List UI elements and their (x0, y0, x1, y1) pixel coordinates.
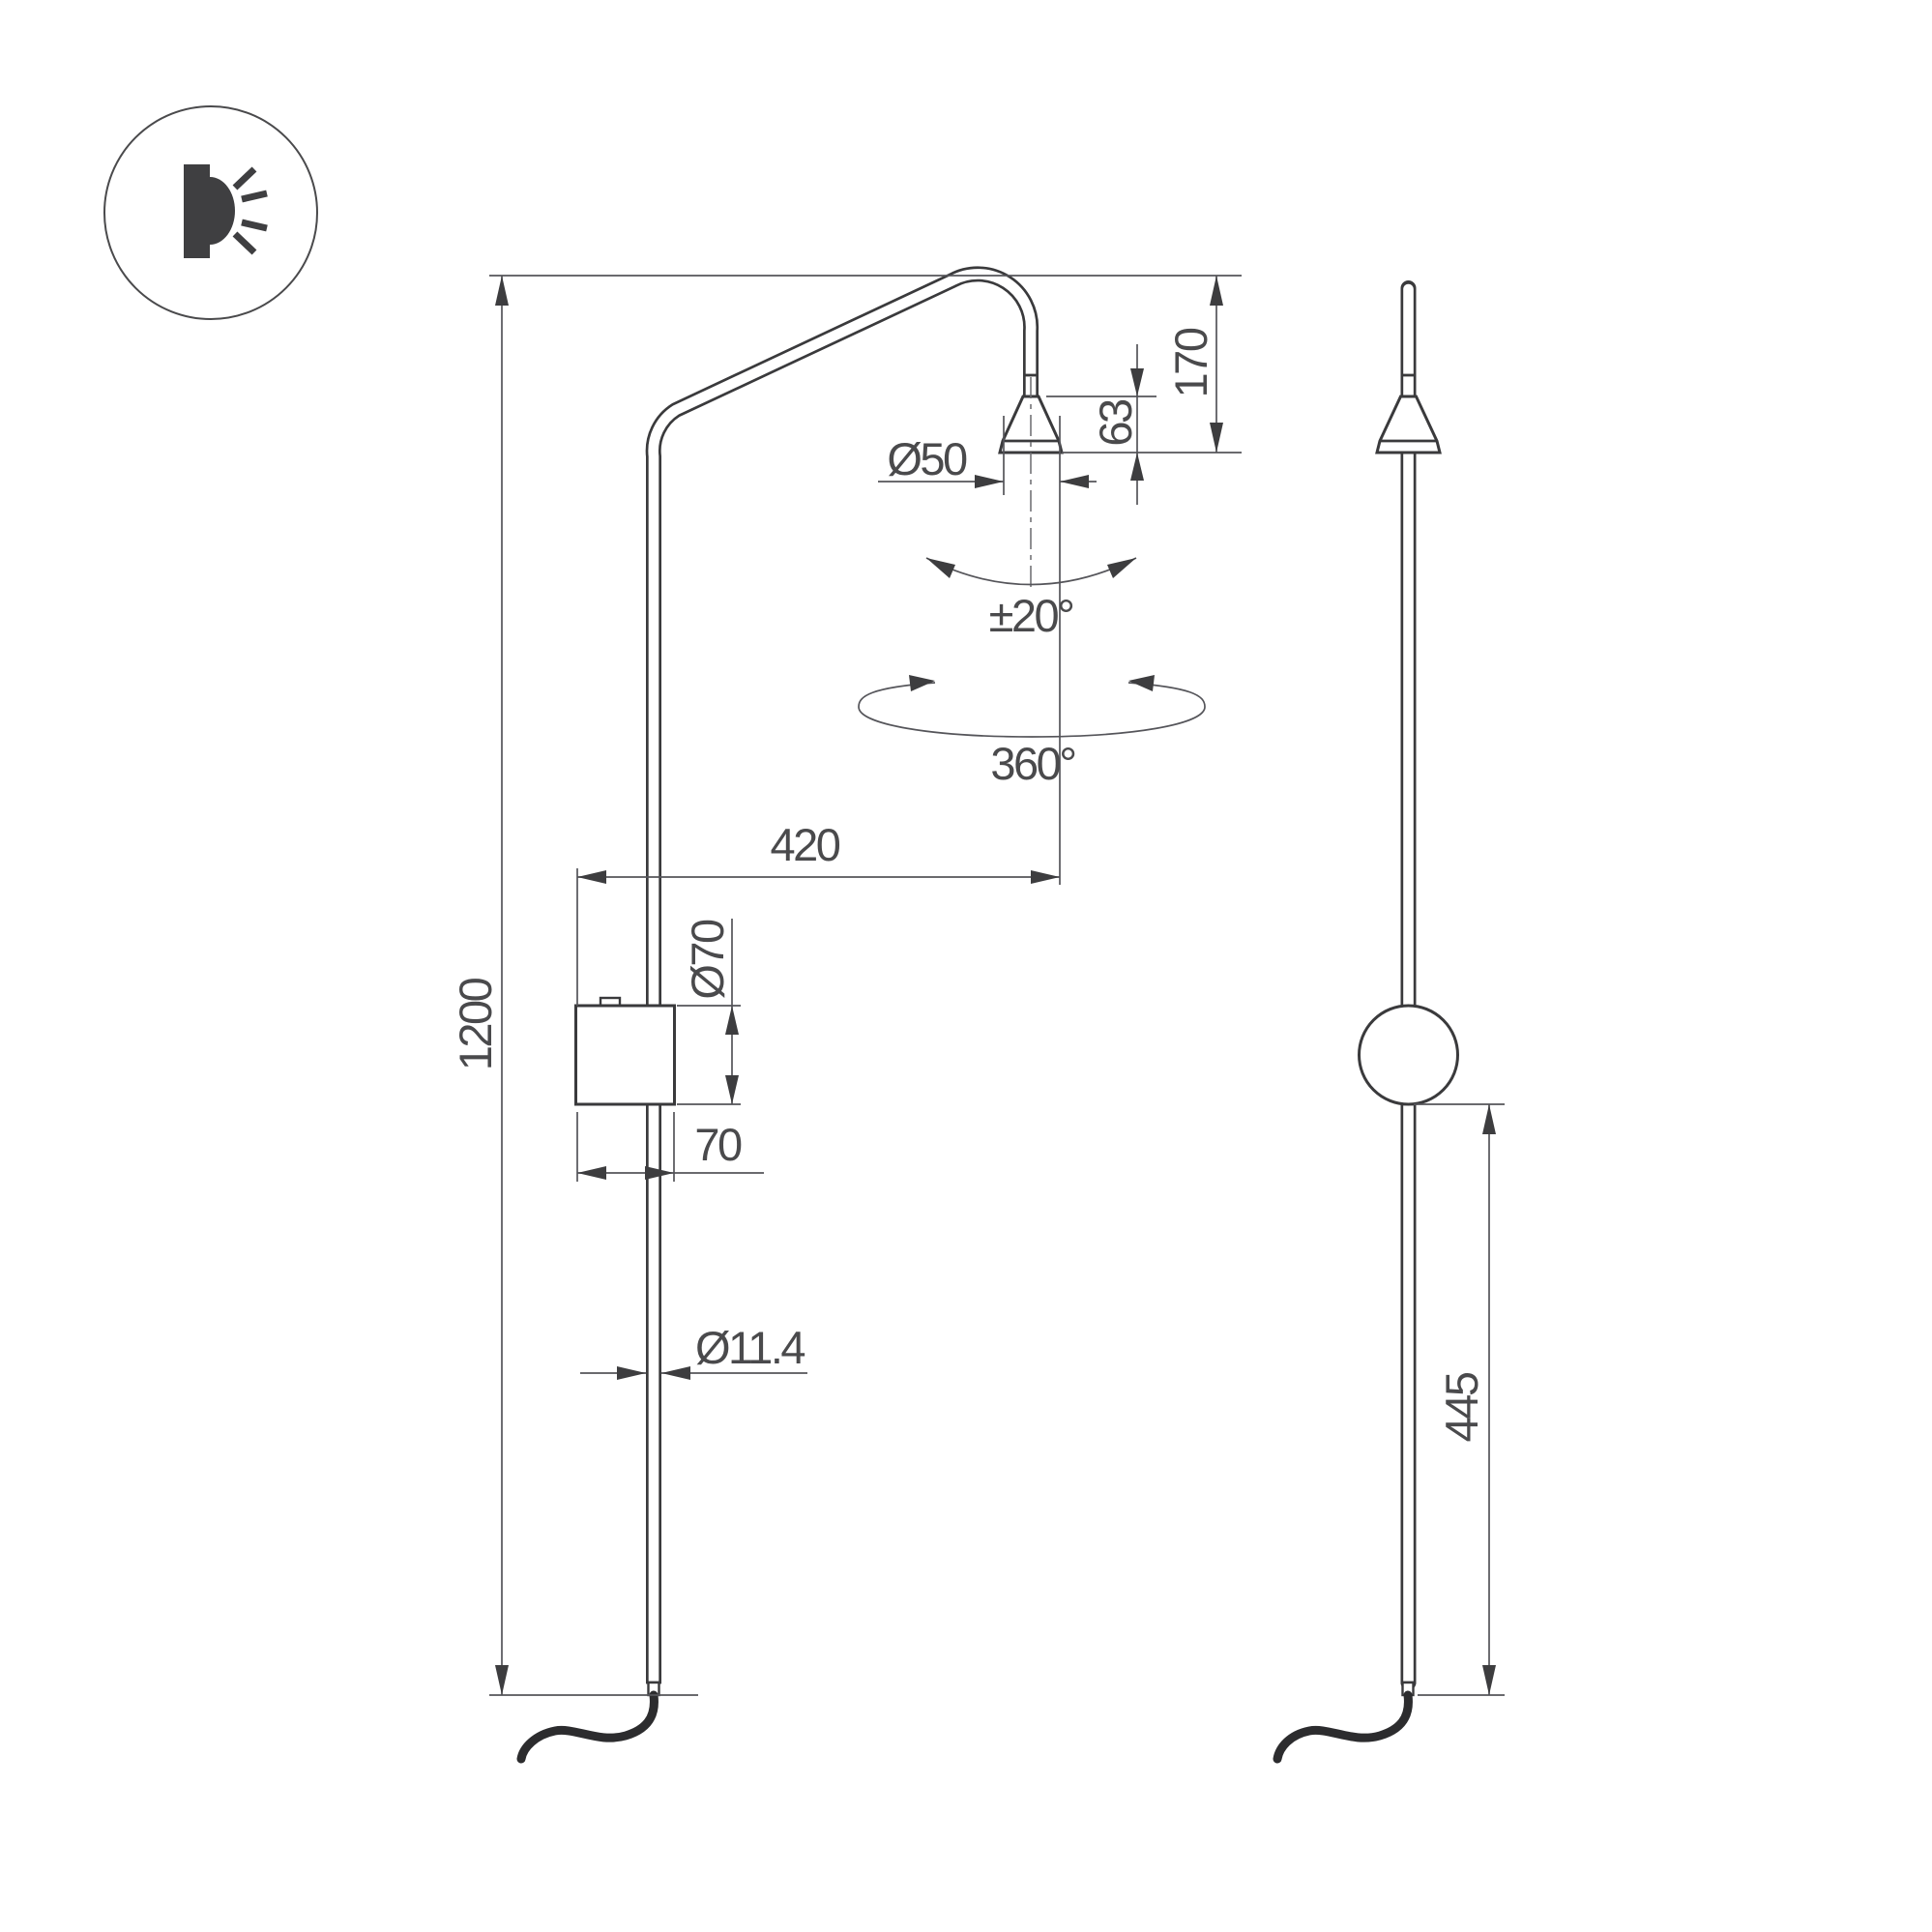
dim-label-tilt: ±20° (989, 590, 1073, 641)
dim-1200: 1200 (450, 276, 509, 1695)
technical-drawing-page: 1200 170 63 Ø50 (0, 0, 1932, 1932)
front-view-lamp-body (521, 274, 1062, 1759)
dim-63: 63 (1046, 344, 1156, 505)
dim-label-rotation: 360° (990, 738, 1074, 789)
dim-label-d70: Ø70 (682, 920, 733, 1000)
icon-light-ray (242, 193, 267, 199)
front-power-cable (521, 1695, 654, 1759)
dim-label-63: 63 (1090, 399, 1141, 447)
side-view-lamp-body (1277, 288, 1458, 1759)
dim-d50: Ø50 (878, 416, 1097, 885)
dim-d70: Ø70 (677, 919, 741, 1104)
side-head-cone (1377, 396, 1440, 453)
icon-light-ray (242, 222, 267, 228)
dim-label-445: 445 (1436, 1372, 1487, 1442)
dim-label-1200: 1200 (450, 978, 501, 1070)
icon-lamp-diffuser (210, 177, 235, 245)
dim-label-170: 170 (1165, 328, 1216, 397)
icon-light-ray (235, 169, 254, 188)
side-view-dimensions: 445 (1414, 1104, 1505, 1695)
icon-light-ray (235, 234, 254, 252)
side-wall-canopy (1360, 1006, 1458, 1104)
front-wall-canopy (576, 1006, 675, 1104)
dim-70: 70 (577, 1112, 764, 1182)
icon-lamp-body (184, 164, 210, 258)
dim-445: 445 (1414, 1104, 1505, 1695)
dim-rotation: 360° (859, 675, 1205, 789)
dim-label-d50: Ø50 (887, 433, 967, 484)
dim-label-420: 420 (771, 819, 840, 870)
front-view-dimensions: 1200 170 63 Ø50 (450, 276, 1242, 1695)
dim-label-d11-4: Ø11.4 (695, 1322, 805, 1373)
dim-d11-4: Ø11.4 (580, 1322, 807, 1380)
dim-label-70: 70 (694, 1119, 742, 1170)
wall-light-icon (104, 106, 317, 319)
side-power-cable (1277, 1695, 1408, 1759)
dim-170: 170 (1165, 276, 1223, 453)
